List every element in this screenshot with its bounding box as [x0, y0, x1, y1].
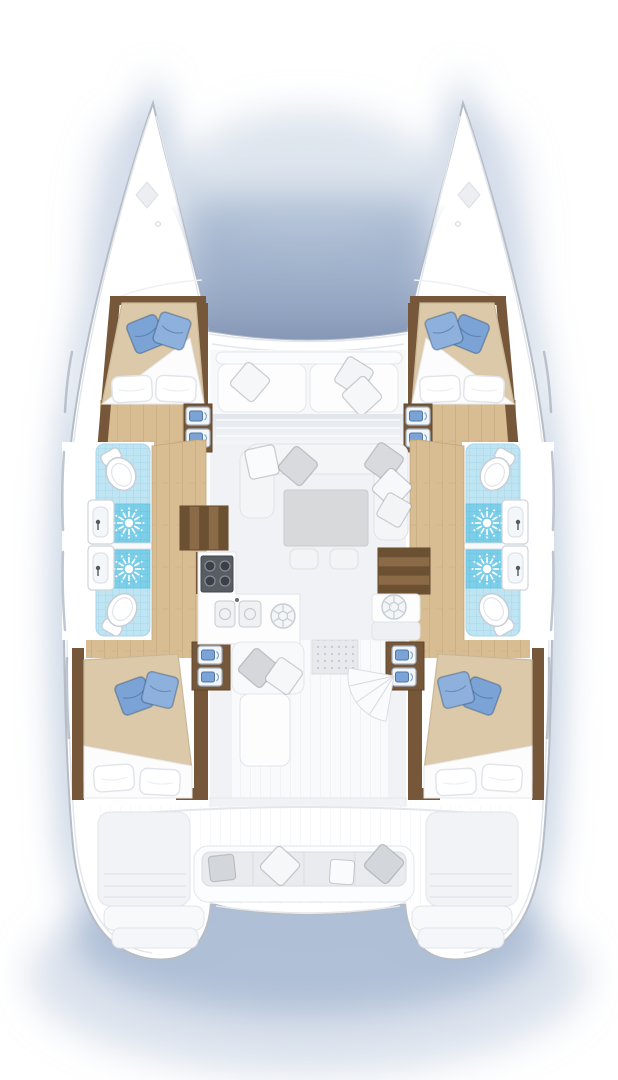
bed-pillow — [435, 768, 476, 796]
washbasin-icon — [88, 500, 114, 544]
step-drawer-icon — [198, 646, 222, 664]
throw-pillow — [244, 444, 280, 480]
step-drawer-icon — [198, 668, 222, 686]
head-port — [62, 442, 154, 640]
blue-pillow — [437, 671, 476, 710]
stairs-port — [180, 506, 228, 550]
washbasin-icon — [502, 500, 528, 544]
ottoman — [290, 549, 318, 569]
blue-pillow — [141, 671, 180, 710]
ottoman — [330, 549, 358, 569]
bed-pillow — [419, 375, 460, 403]
starboard-counter — [372, 594, 420, 640]
cabin-wall — [72, 648, 84, 800]
cabin-wall — [194, 690, 208, 798]
bed-pillow — [139, 768, 180, 796]
bed-pillow — [111, 375, 152, 403]
swim-steps-port — [104, 906, 204, 948]
washbasin-icon — [88, 546, 114, 590]
bed-pillow — [481, 764, 523, 793]
swim-steps-starboard — [412, 906, 512, 948]
salon-bench — [232, 642, 304, 696]
forward-cabin-port — [96, 296, 212, 462]
step-drawer-icon — [392, 646, 416, 664]
cockpit-side-locker — [426, 812, 518, 906]
step-drawer-icon — [392, 668, 416, 686]
salon-aft-wall — [210, 798, 406, 807]
step-drawer-icon — [186, 407, 210, 425]
cabin-wall — [408, 690, 422, 798]
windshield — [212, 414, 404, 444]
cockpit-bench — [194, 843, 414, 902]
bed-pillow — [463, 375, 504, 403]
forward-cabin-starboard — [404, 296, 520, 462]
aft-cabin-port — [72, 640, 230, 800]
aft-cabin-starboard — [386, 640, 544, 800]
throw-pillow — [208, 854, 236, 882]
deck-hatch-icon — [382, 595, 406, 619]
stove-icon — [201, 556, 233, 592]
trampoline — [170, 205, 446, 340]
washbasin-icon — [502, 546, 528, 590]
galley-island — [240, 694, 290, 766]
throw-pillow — [329, 859, 355, 885]
stairs-starboard — [378, 548, 430, 594]
step-drawer-icon — [406, 407, 430, 425]
head-starboard — [462, 442, 554, 640]
catamaran-floorplan — [0, 0, 618, 1080]
deck-hatch-icon — [271, 604, 295, 628]
bed-pillow — [93, 764, 135, 793]
salon-table — [284, 490, 368, 546]
bed-pillow — [155, 375, 196, 403]
aft-cockpit — [98, 806, 518, 906]
cabin-wall — [532, 648, 544, 800]
cockpit-side-locker — [98, 812, 190, 906]
